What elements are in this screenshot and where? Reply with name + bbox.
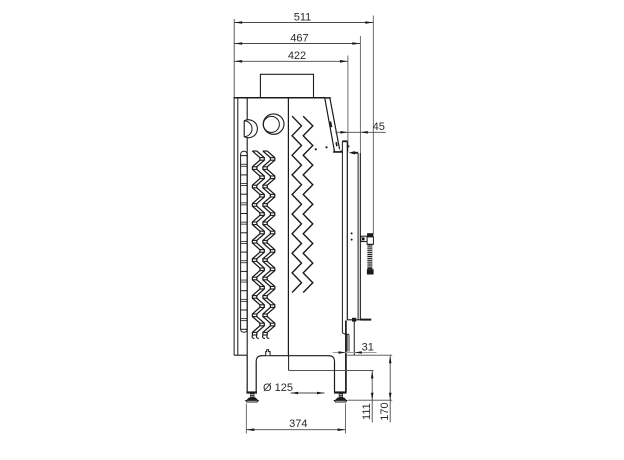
svg-text:467: 467 bbox=[290, 32, 308, 44]
svg-text:45: 45 bbox=[373, 121, 385, 133]
svg-text:111: 111 bbox=[361, 403, 373, 420]
svg-text:170: 170 bbox=[379, 402, 391, 420]
svg-text:374: 374 bbox=[289, 418, 307, 430]
svg-text:Ø 125: Ø 125 bbox=[263, 382, 293, 394]
svg-text:511: 511 bbox=[294, 11, 312, 23]
svg-text:31: 31 bbox=[362, 341, 374, 353]
svg-text:422: 422 bbox=[288, 50, 306, 62]
